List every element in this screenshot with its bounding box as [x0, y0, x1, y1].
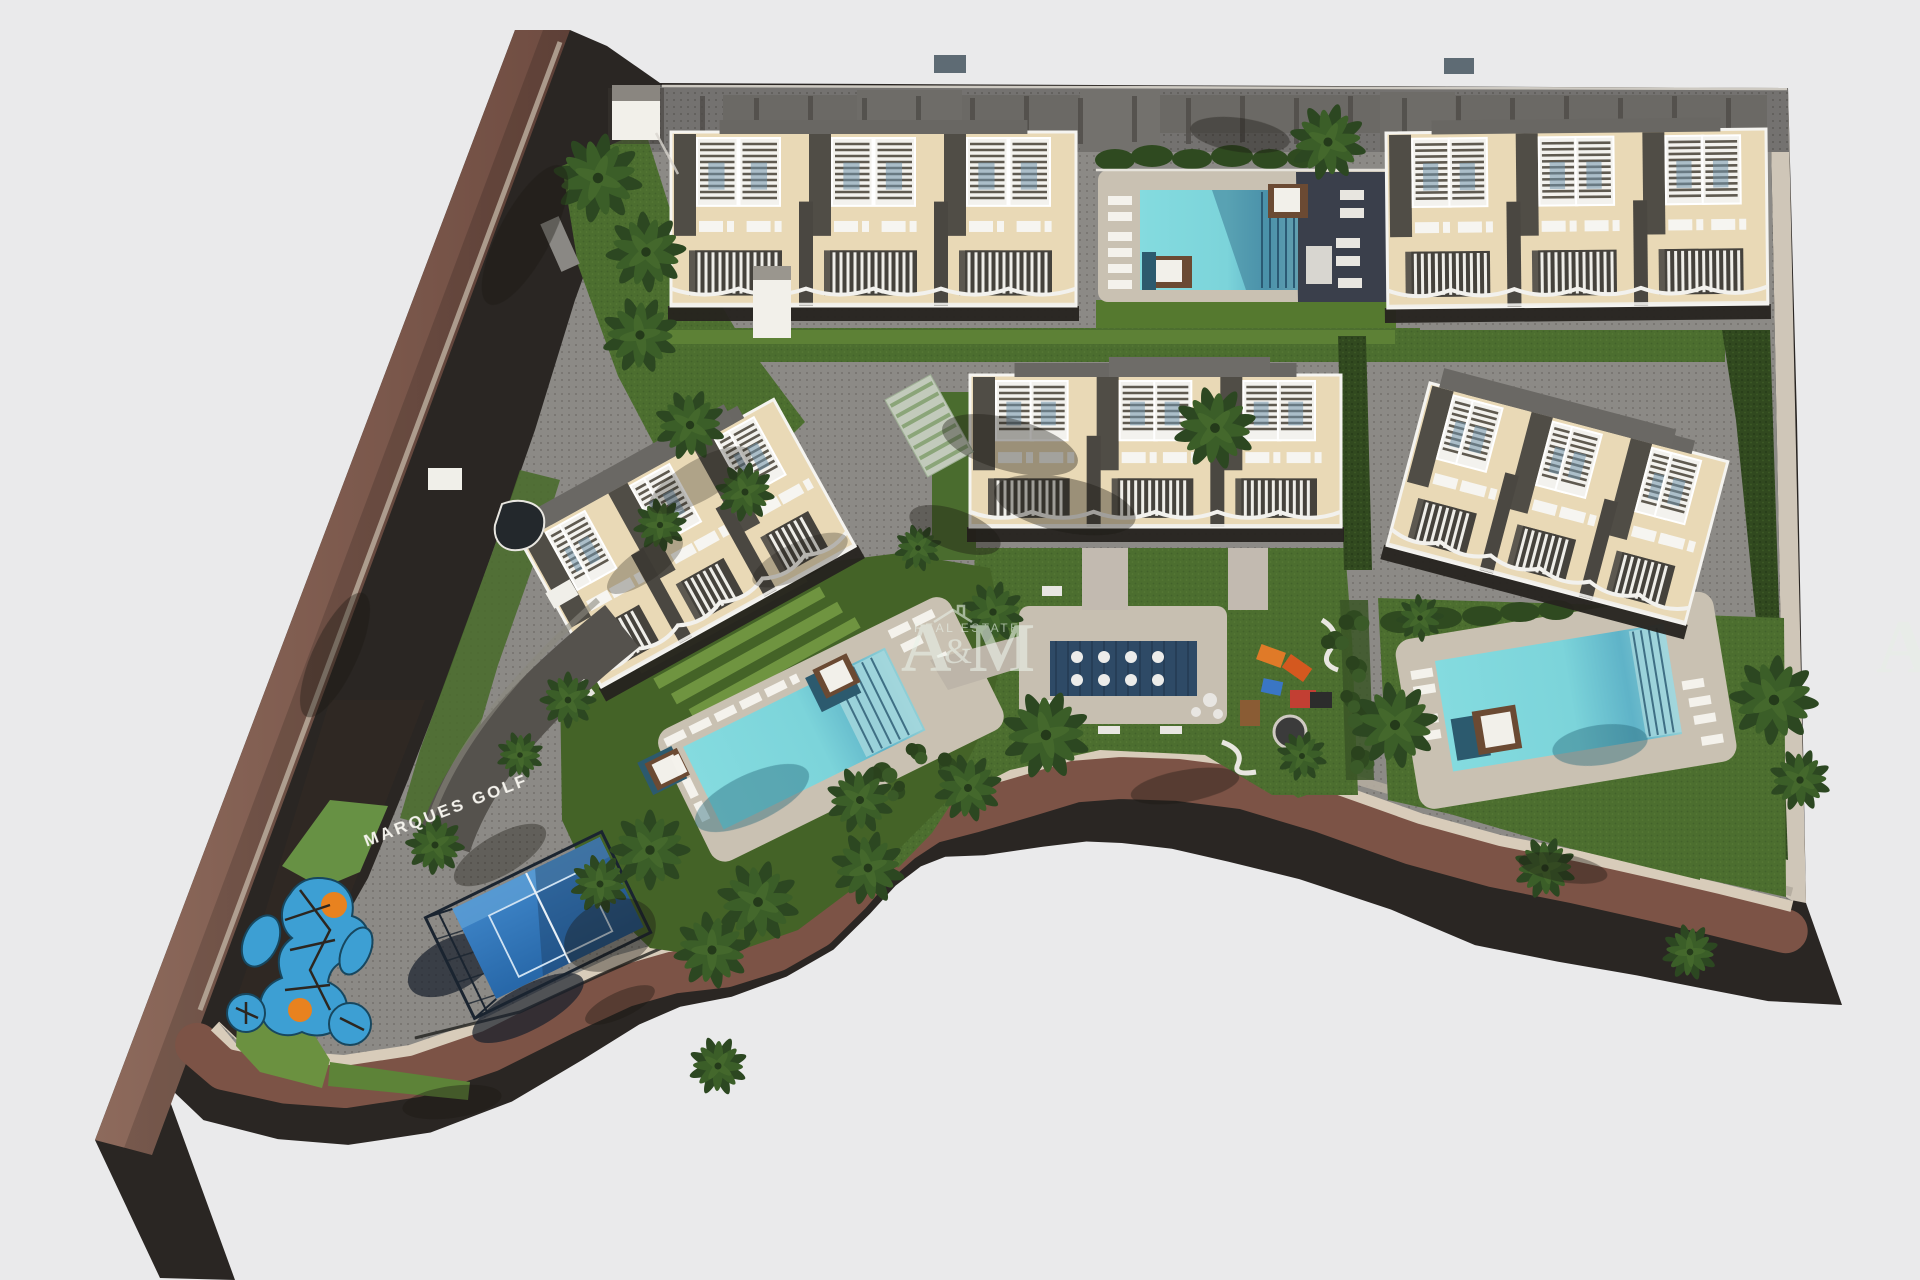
svg-text:&: &: [944, 631, 972, 671]
svg-text:REAL ESTATE: REAL ESTATE: [914, 621, 1021, 635]
svg-text:A: A: [1876, 605, 1920, 689]
